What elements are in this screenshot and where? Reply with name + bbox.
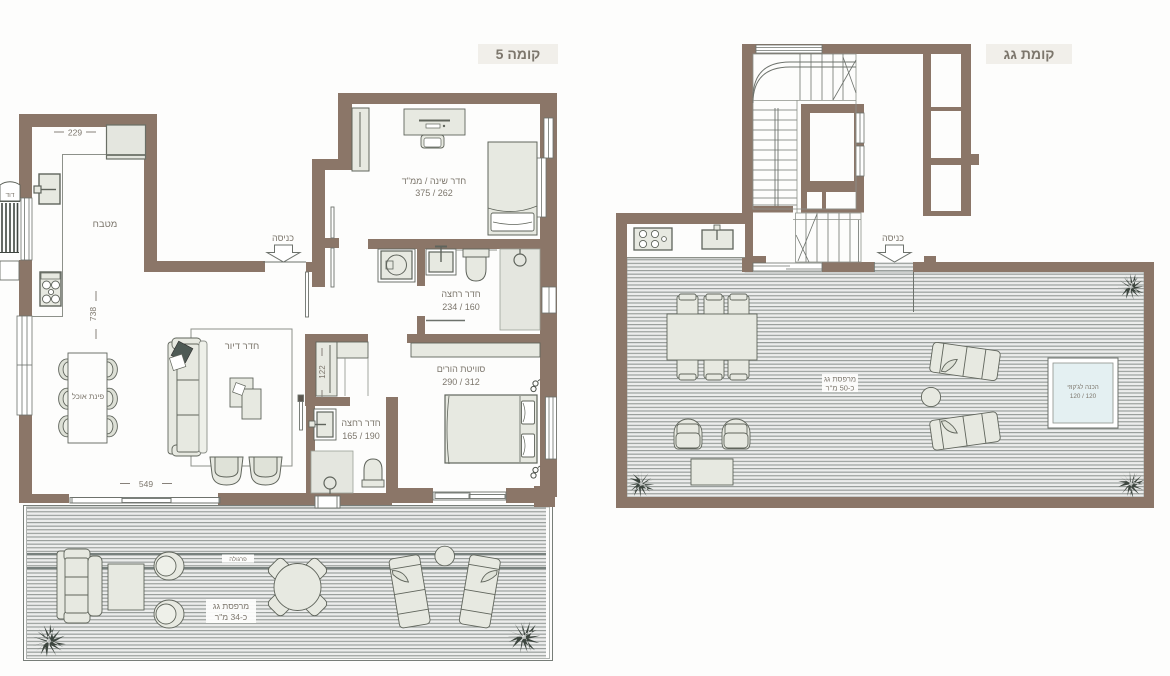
svg-text:פרגולה: פרגולה xyxy=(229,555,247,563)
svg-text:כניסה: כניסה xyxy=(882,233,904,243)
svg-text:מרפסת גג: מרפסת גג xyxy=(213,601,249,611)
svg-text:738: 738 xyxy=(88,307,98,321)
svg-text:290 / 312: 290 / 312 xyxy=(442,377,480,387)
svg-text:165 / 190: 165 / 190 xyxy=(342,431,380,441)
svg-text:חדר רחצה: חדר רחצה xyxy=(441,289,480,299)
svg-text:הכנה לג'קוזי: הכנה לג'קוזי xyxy=(1067,383,1099,391)
svg-text:229: 229 xyxy=(68,128,82,138)
svg-text:234 / 160: 234 / 160 xyxy=(442,302,480,312)
svg-text:כניסה: כניסה xyxy=(272,233,294,243)
svg-text:549: 549 xyxy=(139,479,153,489)
svg-text:375 / 262: 375 / 262 xyxy=(415,188,453,198)
svg-text:חדר רחצה: חדר רחצה xyxy=(341,418,380,428)
svg-text:מרפסת גג: מרפסת גג xyxy=(824,375,856,384)
svg-text:חדר דיור: חדר דיור xyxy=(225,341,260,352)
svg-text:כ-50 מ"ר: כ-50 מ"ר xyxy=(826,384,855,393)
svg-text:120 / 120: 120 / 120 xyxy=(1070,393,1097,400)
svg-text:דוד: דוד xyxy=(6,192,15,199)
svg-text:סוויטת הורים: סוויטת הורים xyxy=(437,364,486,374)
svg-text:מטבח: מטבח xyxy=(93,219,118,230)
svg-text:חדר שינה / ממ"ד: חדר שינה / ממ"ד xyxy=(402,176,466,186)
svg-text:קומת גג: קומת גג xyxy=(1004,46,1055,62)
svg-text:פינת אוכל: פינת אוכל xyxy=(72,392,105,401)
svg-text:122: 122 xyxy=(318,365,327,379)
svg-text:כ-34 מ"ר: כ-34 מ"ר xyxy=(215,612,248,622)
svg-text:קומה 5: קומה 5 xyxy=(496,46,541,62)
